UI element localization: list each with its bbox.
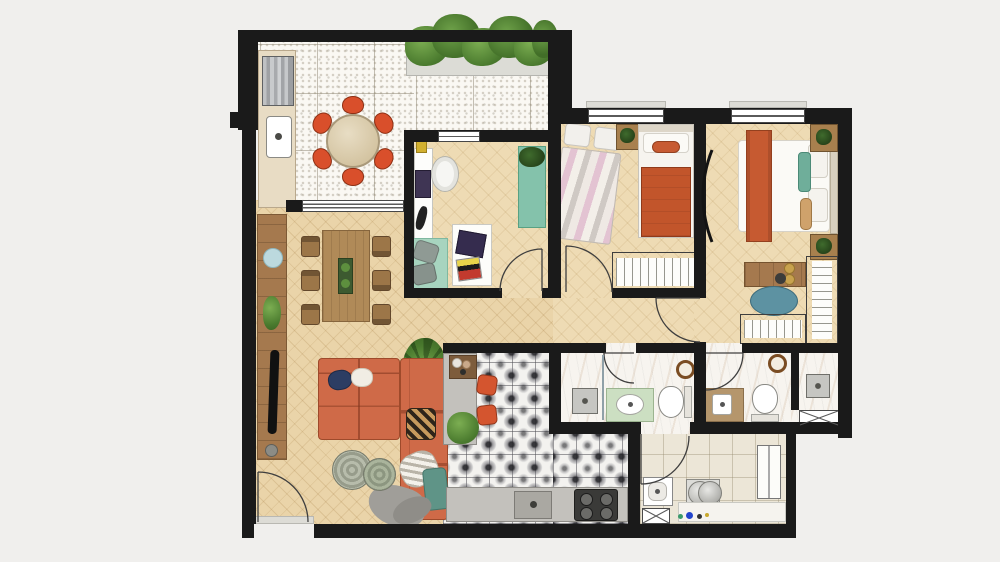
dining-chair — [301, 270, 320, 291]
wall — [242, 130, 256, 524]
bed-pillow — [563, 123, 591, 148]
burner — [600, 493, 613, 506]
cleaning-bottle-blue — [686, 512, 693, 519]
window-sill — [729, 101, 807, 108]
terrace-chair — [342, 168, 364, 186]
wall — [553, 422, 641, 434]
table-laptop — [455, 230, 487, 258]
round-mirror-bath1 — [676, 360, 695, 379]
wall — [230, 112, 240, 128]
toilet-bath2 — [752, 384, 778, 414]
bar-stool — [476, 374, 499, 397]
wall — [548, 40, 572, 112]
shower-head-bath1 — [572, 388, 598, 414]
entrance-threshold — [252, 516, 314, 524]
master-bed — [736, 138, 838, 234]
decor-bowl — [265, 444, 278, 457]
toilet-tank-bath1 — [684, 386, 692, 418]
master-headboard — [830, 138, 838, 234]
master-wardrobe-side — [806, 256, 838, 344]
dresser-plate-gold — [784, 263, 795, 274]
pillow-white — [351, 368, 373, 387]
round-mirror-bath2 — [768, 354, 787, 373]
window-sill — [586, 101, 666, 108]
wall — [694, 353, 706, 422]
terrace-faucet — [275, 133, 282, 140]
bed-orange — [638, 124, 694, 238]
dresser-bowl-dark — [775, 273, 786, 284]
dining-chair — [301, 304, 320, 325]
wall — [246, 30, 572, 42]
wall — [838, 108, 852, 438]
shower-head-ensuite — [806, 374, 830, 398]
wall — [404, 130, 414, 298]
burner — [580, 507, 593, 520]
wall — [786, 434, 796, 534]
laundry-tank — [643, 477, 673, 506]
cleaning-bottle-yellow — [705, 513, 709, 517]
dining-chair — [372, 236, 391, 257]
toilet-bath1 — [658, 386, 684, 418]
wall — [742, 343, 850, 353]
wall — [694, 108, 706, 298]
cleaning-bottle-dark — [697, 514, 702, 519]
rattan-pouf-small — [363, 458, 396, 491]
burner — [580, 493, 593, 506]
decor-plate — [263, 248, 283, 268]
centerpiece-plant — [341, 279, 350, 288]
wall — [242, 524, 254, 538]
wall — [628, 434, 640, 524]
terrace-sliding-door — [302, 200, 404, 212]
table-books — [456, 256, 483, 281]
master-pouf-teal — [750, 286, 798, 316]
dining-chair — [372, 304, 391, 325]
bed-headboard — [639, 125, 693, 132]
bar-stool — [476, 404, 498, 426]
sink-drain — [720, 402, 725, 407]
laundry-tall-cabinet — [757, 445, 781, 499]
pillow-teal — [798, 152, 811, 192]
orange-blanket — [641, 167, 691, 237]
wall — [690, 422, 850, 434]
wall — [542, 288, 561, 298]
desk-laptop — [415, 170, 431, 198]
shelf-dot-dark — [460, 369, 466, 375]
wall — [443, 343, 606, 353]
pillow-zigzag — [406, 408, 436, 440]
sink-drain — [628, 402, 633, 407]
wall — [636, 343, 704, 353]
wall — [286, 200, 302, 212]
shelf-bowl — [452, 358, 462, 368]
wall — [404, 130, 556, 142]
tank-drain — [655, 489, 660, 494]
wall — [612, 288, 706, 298]
master-wardrobe-foot — [740, 314, 806, 344]
floor-plan — [0, 0, 1000, 562]
office-chair — [431, 156, 459, 192]
cleaning-bottle-green — [678, 514, 683, 519]
centerpiece-plant — [341, 263, 350, 272]
kitchen-faucet — [530, 501, 537, 508]
striped-duvet — [551, 146, 622, 245]
office-window — [438, 131, 480, 142]
wall — [238, 30, 258, 130]
burner — [600, 507, 613, 520]
laundry-counter — [678, 502, 786, 522]
wardrobe-bedroom1 — [612, 252, 698, 292]
toilet-tank-bath2 — [751, 414, 779, 422]
wall — [314, 524, 796, 538]
terrace-chair — [342, 96, 364, 114]
dining-chair — [372, 270, 391, 291]
bolster-orange — [652, 141, 680, 153]
wall — [791, 353, 799, 410]
wall — [404, 288, 502, 298]
bedroom1-window — [588, 109, 664, 123]
shelf-bowl — [462, 360, 471, 369]
bbq-grill — [262, 56, 294, 106]
bolster-tan — [800, 198, 812, 230]
bed-runner-orange — [746, 130, 772, 242]
terrace-round-table — [326, 114, 380, 168]
dining-chair — [301, 236, 320, 257]
master-window — [731, 109, 805, 123]
duct-shaft-laundry — [642, 508, 670, 524]
wall — [548, 124, 561, 288]
